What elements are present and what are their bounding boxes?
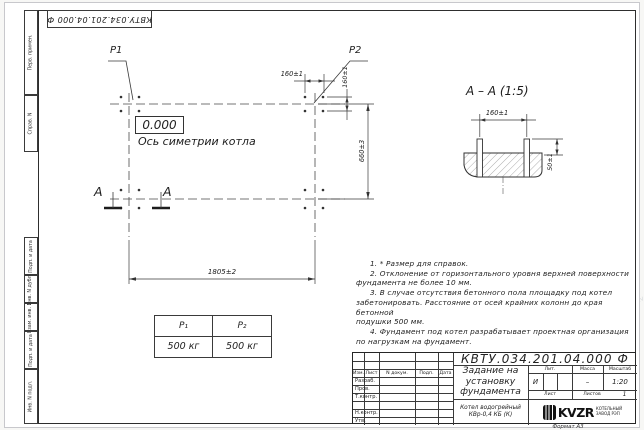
note-line: подушки 500 мм. [356,317,634,327]
section-dim-50-label: 50±1 [546,150,554,174]
plan-dashed-outline [110,93,345,237]
note-line: 4. Фундамент под котел разрабатывает про… [356,327,634,337]
title-block: Изм. Лист N докум. Подп. Дата Разраб. Пр… [352,352,636,424]
technical-notes: 1. * Размер для справок. 2. Отклонение о… [356,259,634,346]
load-table-value-p2: 500 кг [213,337,271,358]
plan-level-mark: 0.000 [135,116,184,134]
tb-product-name: Котел водогрейный КВр-0,4 КБ (К) [453,399,528,425]
plan-dim-160h-label: 160±1 [273,70,303,78]
load-table-header-p2: P₂ [213,316,271,337]
tb-col-ndoc: N докум. [379,369,415,377]
tb-doc-number: КВТУ.034.201.04.000 Ф [453,353,637,365]
tb-product-line: КВр-0,4 КБ (К) [469,412,513,419]
tb-lit-label: Лит. [528,365,572,373]
note-line: 1. * Размер для справок. [356,259,634,269]
load-table-value-p1: 500 кг [155,337,213,358]
plan-section-cut-marks [104,192,170,208]
tb-scale-value: 1:20 [603,373,637,390]
drawing-sheet: { "watermark": { "text": "kotlam-tev.kz"… [0,0,644,430]
plan-dim-1805 [129,240,315,284]
plan-dim-1805-label: 1805±2 [192,268,252,276]
note-line: фундамента не более 10 мм. [356,278,634,288]
tb-col-izm: Изм. [353,369,364,377]
tb-row-prov: Пров. [353,385,379,393]
kvzr-logo-icon [543,405,556,420]
section-cut-letter-left: A [94,184,103,199]
note-line: по нагрузкам на фундамент. [356,337,634,347]
load-table-header-p1: P₁ [155,316,213,337]
section-dim-160-label: 160±1 [477,109,517,117]
plan-load-point-p2-label: P2 [349,45,361,56]
kvzr-logo-text: KVZR [558,405,594,420]
tb-sheet-label: Лист [528,390,572,399]
tb-scale-label: Масштаб [603,365,637,373]
tb-mass-label: Масса [572,365,603,373]
tb-sheets-value: 1 [612,390,637,399]
plan-axis-of-symmetry-label: Ось симетрии котла [138,135,256,148]
tb-row-tkontr: Т.контр. [353,393,379,401]
tb-col-data: Дата [438,369,453,377]
plan-dim-160v [327,89,352,120]
tb-lit-value: И [528,373,543,390]
tb-col-list: Лист [364,369,379,377]
section-concrete-block [464,153,542,177]
note-line: забетонировать. Расстояние от осей крайн… [356,298,634,317]
tb-title-line: фундамента [460,387,521,398]
tb-col-podp: Подп. [415,369,438,377]
tb-row-utv: Утв. [353,417,379,425]
note-line: 3. В случае отсутствия бетонного пола пл… [356,288,634,298]
tb-logo-cell: KVZR КОТЕЛЬНЫЙ ЗАВОД РЭП [528,399,637,425]
tb-row-blank [353,401,379,409]
section-dim-160 [471,114,536,137]
tb-mass-value: – [572,373,603,390]
section-cut-letter-right: A [163,184,172,199]
tb-row-nkontr: Н.контр. [353,409,379,417]
plan-load-point-p1-label: P1 [110,45,122,56]
plan-anchor-bolt-points [120,96,325,210]
note-line: 2. Отклонение от горизонтального уровня … [356,269,634,279]
kvzr-logo-subtext-line: ЗАВОД РЭП [596,412,622,417]
tb-drawing-title: Задание на установку фундамента [453,365,528,399]
tb-row-razrab: Разраб. [353,377,379,385]
plan-level-value: 0.000 [142,118,176,132]
tb-sheets-label: Листов [572,390,612,399]
plan-dim-660-label: 660±3 [358,137,366,165]
kvzr-logo: KVZR КОТЕЛЬНЫЙ ЗАВОД РЭП [543,405,622,420]
plan-dim-160v-label: 160±1 [341,63,349,91]
load-table: P₁ P₂ 500 кг 500 кг [154,315,272,358]
section-view-title: A – A (1:5) [466,84,529,98]
kvzr-logo-subtext: КОТЕЛЬНЫЙ ЗАВОД РЭП [596,407,622,416]
tb-product-line: Котел водогрейный [460,405,521,412]
sheet-format-label: Формат А3 [528,424,608,430]
